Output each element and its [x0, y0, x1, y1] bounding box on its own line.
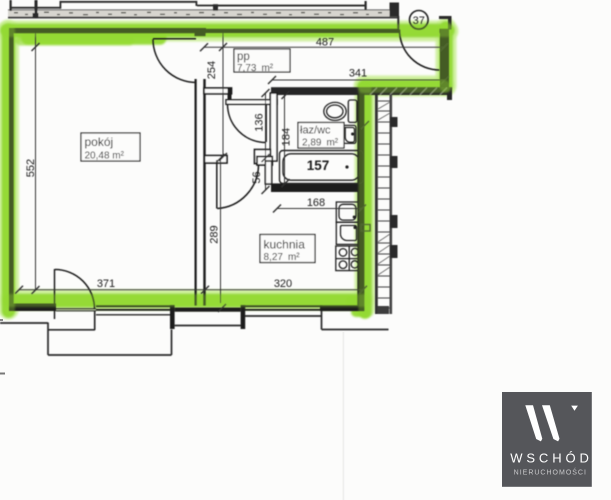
svg-text:371: 371	[97, 278, 115, 290]
svg-text:254: 254	[206, 61, 218, 79]
svg-text:kuchnia: kuchnia	[264, 238, 306, 252]
svg-text:184: 184	[281, 128, 293, 146]
svg-text:320: 320	[274, 278, 292, 290]
svg-text:20,48 m²: 20,48 m²	[85, 151, 125, 162]
svg-text:341: 341	[349, 68, 367, 80]
svg-text:136: 136	[254, 113, 266, 131]
svg-text:NIERUCHOMOŚCI: NIERUCHOMOŚCI	[514, 468, 587, 477]
svg-text:56: 56	[251, 171, 263, 183]
svg-text:2,89 m²: 2,89 m²	[302, 138, 339, 149]
svg-text:łaz/wc: łaz/wc	[300, 125, 331, 137]
svg-text:8,27 m²: 8,27 m²	[264, 252, 301, 263]
svg-text:552: 552	[25, 159, 37, 177]
svg-text:WSCHÓD: WSCHÓD	[510, 451, 593, 466]
svg-text:487: 487	[316, 37, 334, 49]
svg-text:7,73 m²: 7,73 m²	[237, 63, 274, 74]
svg-text:pp: pp	[237, 51, 250, 63]
svg-text:168: 168	[307, 197, 325, 209]
svg-text:pokój: pokój	[85, 135, 114, 149]
svg-text:157: 157	[307, 158, 330, 173]
svg-text:289: 289	[209, 225, 221, 243]
